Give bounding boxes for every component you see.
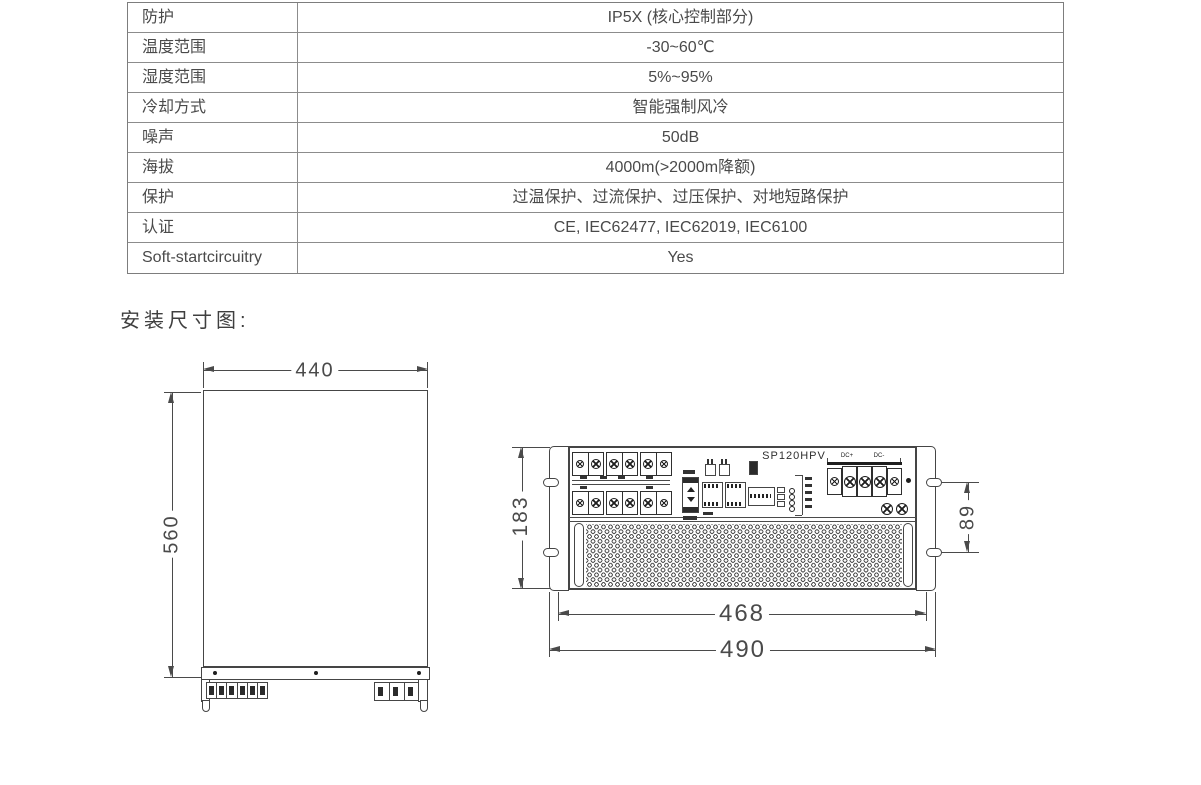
label-rule [572, 484, 670, 485]
terminal-strip [206, 682, 268, 699]
label-rule [572, 480, 670, 481]
test-point [789, 506, 795, 512]
screw-dot-icon [314, 671, 318, 675]
arrowhead-icon [168, 666, 174, 677]
silk-label-mark [683, 470, 695, 474]
terminal-bus-bar [827, 462, 902, 465]
spec-value: Yes [298, 243, 1063, 273]
silk-label-mark [703, 512, 713, 515]
jumper [777, 494, 785, 500]
dc-terminal [842, 466, 857, 497]
silk-label-mark [683, 516, 697, 520]
panel-divider [569, 521, 916, 522]
spec-value: CE, IEC62477, IEC62019, IEC6100 [298, 213, 1063, 242]
jumper [777, 501, 785, 507]
spec-value: 4000m(>2000m降额) [298, 153, 1063, 182]
panel-screw-icon [896, 503, 908, 515]
terminal-peg [202, 700, 210, 712]
dc-terminal [872, 466, 887, 497]
spec-value: IP5X (核心控制部分) [298, 3, 1063, 32]
dc-terminal [887, 468, 902, 495]
silk-label-mark [805, 505, 812, 508]
terminal-connector [748, 487, 775, 506]
spec-label: 保护 [128, 183, 298, 212]
small-component [719, 464, 730, 476]
table-row: 湿度范围 5%~95% [128, 63, 1063, 93]
spec-sheet-page: 防护 IP5X (核心控制部分) 温度范围 -30~60℃ 湿度范围 5%~95… [0, 0, 1201, 785]
spec-value: 过温保护、过流保护、过压保护、对地短路保护 [298, 183, 1063, 212]
arrowhead-icon [518, 578, 524, 589]
spec-label: 防护 [128, 3, 298, 32]
arrowhead-icon [518, 447, 524, 458]
spec-value: 5%~95% [298, 63, 1063, 92]
small-component [749, 461, 758, 475]
jumper [777, 487, 785, 493]
terminal-peg [420, 700, 428, 712]
panel-divider [569, 517, 916, 518]
bracket-line [802, 475, 803, 515]
spec-table: 防护 IP5X (核心控制部分) 温度范围 -30~60℃ 湿度范围 5%~95… [127, 2, 1064, 274]
table-row: 噪声 50dB [128, 123, 1063, 153]
arrowhead-icon [915, 610, 926, 616]
pin-mark [711, 459, 713, 464]
comm-port [682, 477, 699, 513]
pv-label-mark [646, 486, 653, 489]
indicator-dot [906, 478, 911, 483]
pin-mark [725, 459, 727, 464]
terminal-strip [374, 682, 420, 701]
table-row: 海拔 4000m(>2000m降额) [128, 153, 1063, 183]
grille-end-bar [903, 523, 913, 587]
extension-line [941, 552, 979, 553]
spec-label: 噪声 [128, 123, 298, 152]
dim-overall-width-label: 490 [716, 636, 770, 664]
spec-label: 冷却方式 [128, 93, 298, 122]
grille-end-bar [574, 523, 584, 587]
left-mounting-ear [549, 446, 569, 591]
ear-slot [926, 548, 942, 557]
arrowhead-icon [549, 646, 560, 652]
pv-terminal-pair [606, 452, 638, 476]
arrowhead-icon [964, 482, 970, 493]
spec-label: 湿度范围 [128, 63, 298, 92]
pin-mark [707, 459, 709, 464]
arrowhead-icon [417, 366, 428, 372]
panel-screw-icon [881, 503, 893, 515]
model-name: SP120HPV [762, 450, 826, 462]
dc-terminal [827, 468, 842, 495]
bracket-line [795, 475, 802, 476]
dim-panel-height-label: 183 [509, 491, 533, 540]
spec-label: Soft-startcircuitry [128, 243, 298, 273]
dim-width-label: 440 [291, 360, 338, 383]
terminal-end-cap [418, 679, 428, 702]
extension-line [941, 482, 979, 483]
spec-label: 海拔 [128, 153, 298, 182]
terminal-connector [702, 482, 723, 508]
silk-label-mark [805, 477, 812, 480]
silk-label-mark [805, 484, 812, 487]
pv-label-mark [600, 476, 607, 479]
extension-line [164, 677, 201, 678]
extension-line [926, 592, 927, 621]
small-component [705, 464, 716, 476]
pv-label-mark [618, 476, 625, 479]
arrowhead-icon [168, 392, 174, 403]
table-row: 冷却方式 智能强制风冷 [128, 93, 1063, 123]
dim-slot-spacing-label: 89 [957, 500, 980, 534]
enclosure-outline [203, 390, 428, 667]
arrowhead-icon [203, 366, 214, 372]
table-row: Soft-startcircuitry Yes [128, 243, 1063, 273]
pv-terminal-pair [640, 491, 672, 515]
ear-slot [543, 478, 559, 487]
pv-terminal-pair [572, 491, 604, 515]
silk-label-mark [805, 498, 812, 501]
table-row: 保护 过温保护、过流保护、过压保护、对地短路保护 [128, 183, 1063, 213]
ear-slot [543, 548, 559, 557]
pv-terminal-pair [606, 491, 638, 515]
arrowhead-icon [925, 646, 936, 652]
screw-dot-icon [213, 671, 217, 675]
spec-value: 智能强制风冷 [298, 93, 1063, 122]
spec-value: 50dB [298, 123, 1063, 152]
dc-negative-label: DC- [874, 453, 885, 459]
pin-mark [721, 459, 723, 464]
section-title: 安装尺寸图: [120, 304, 250, 333]
silk-label-mark [805, 491, 812, 494]
dc-terminal [857, 466, 872, 497]
screw-dot-icon [417, 671, 421, 675]
spec-value: -30~60℃ [298, 33, 1063, 62]
table-row: 认证 CE, IEC62477, IEC62019, IEC6100 [128, 213, 1063, 243]
table-row: 温度范围 -30~60℃ [128, 33, 1063, 63]
vent-grille [586, 524, 902, 587]
pv-terminal-pair [640, 452, 672, 476]
dim-height-label: 560 [161, 510, 184, 557]
bracket-line [795, 515, 802, 516]
pv-label-mark [580, 486, 587, 489]
arrowhead-icon [964, 541, 970, 552]
extension-line [558, 592, 559, 621]
ear-slot [926, 478, 942, 487]
right-mounting-ear [916, 446, 936, 591]
pv-label-mark [646, 476, 653, 479]
arrowhead-icon [558, 610, 569, 616]
dim-body-width-label: 468 [715, 600, 769, 628]
spec-label: 认证 [128, 213, 298, 242]
pv-label-mark [580, 476, 587, 479]
terminal-connector [725, 482, 746, 508]
dc-positive-label: DC+ [841, 453, 853, 459]
table-row: 防护 IP5X (核心控制部分) [128, 3, 1063, 33]
spec-label: 温度范围 [128, 33, 298, 62]
pv-terminal-pair [572, 452, 604, 476]
